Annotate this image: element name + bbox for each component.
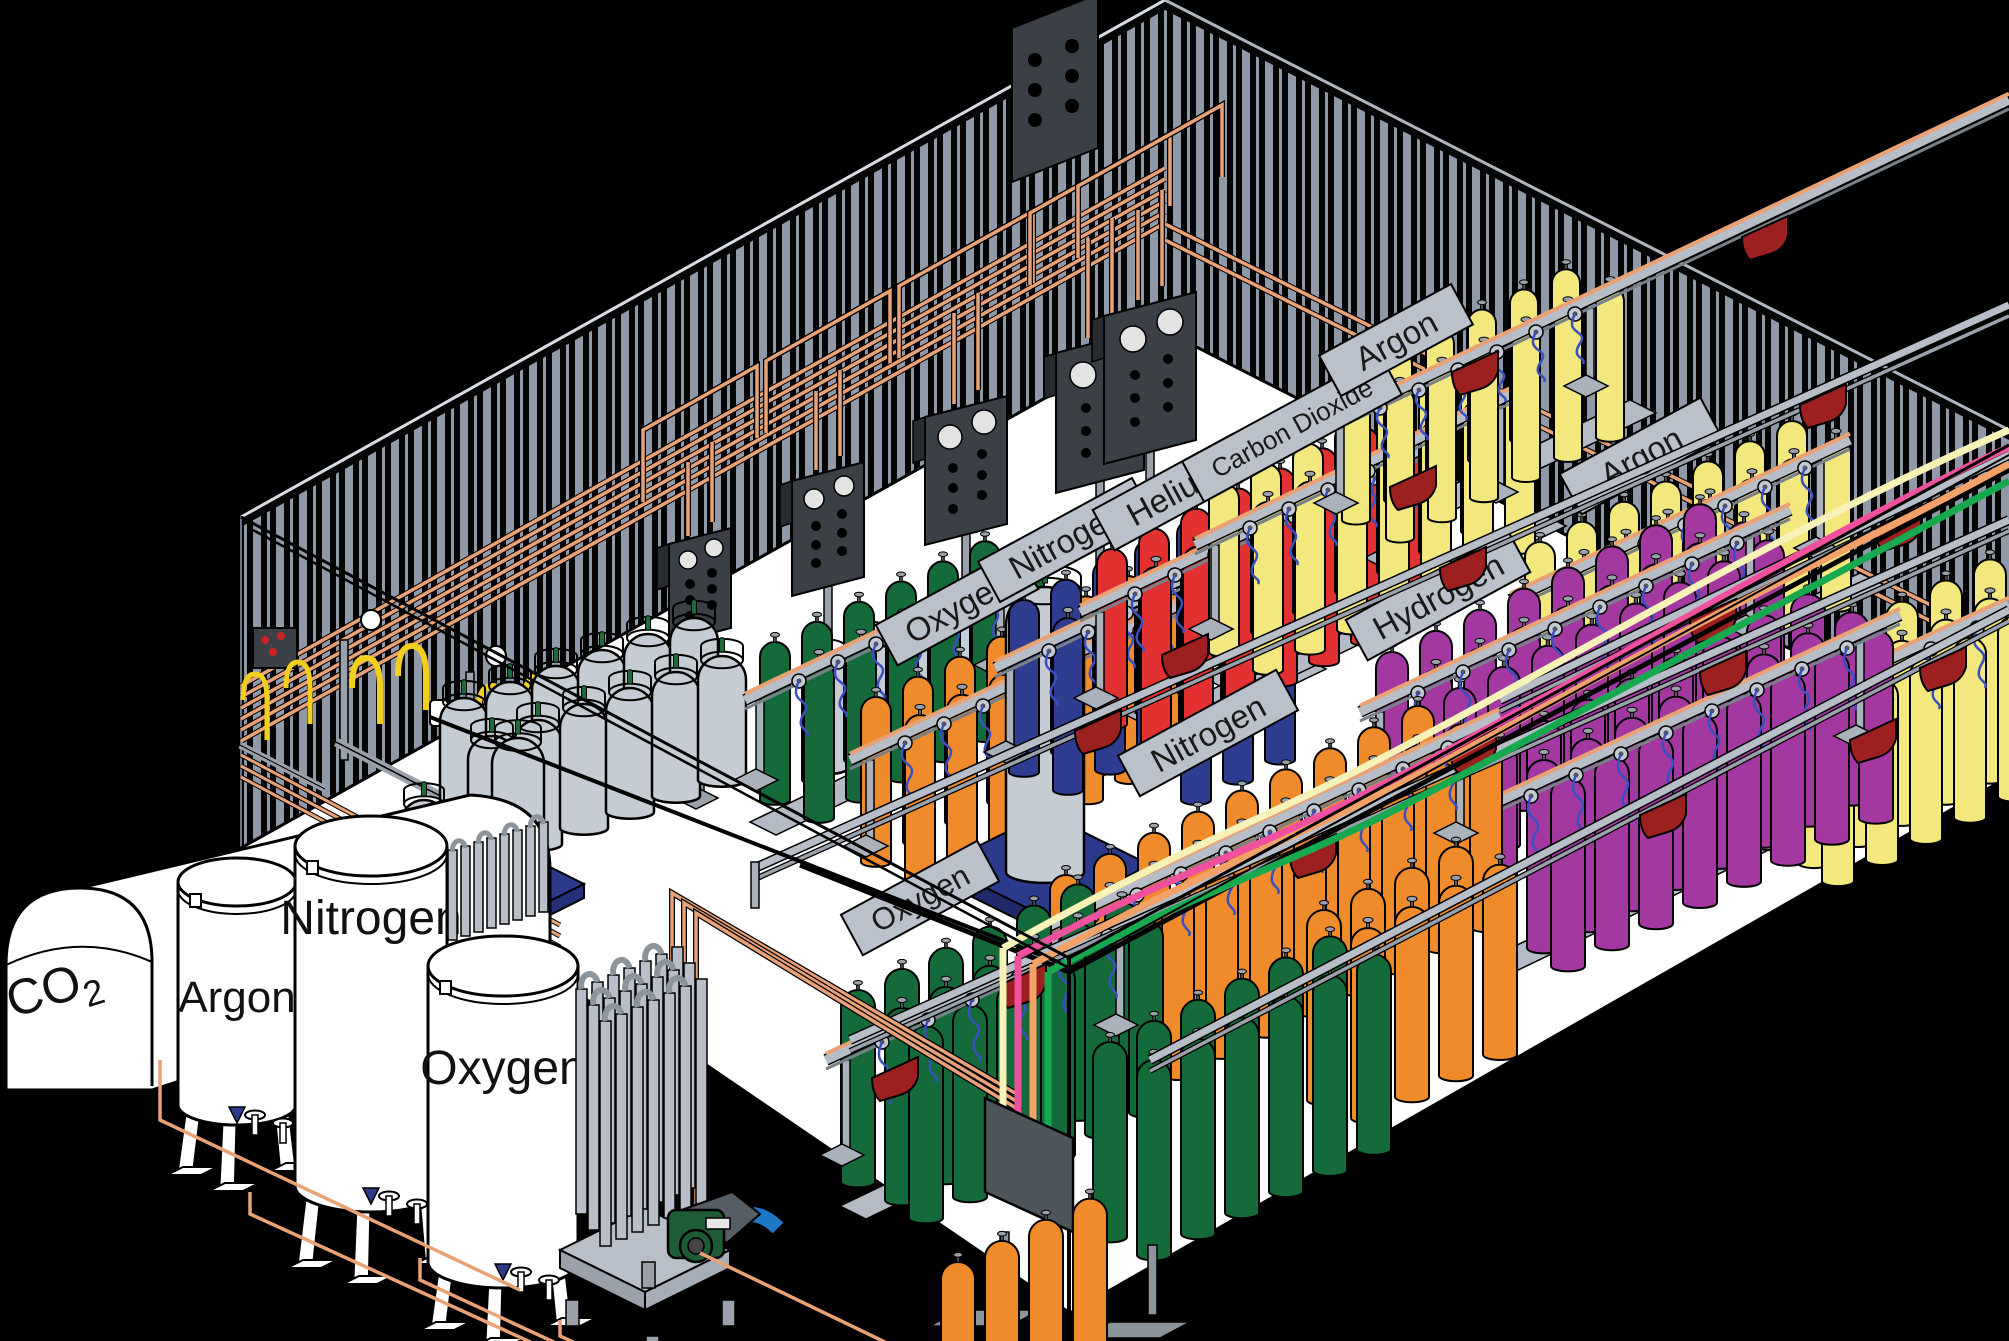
svg-text:Argon: Argon: [178, 973, 295, 1022]
svg-text:Nitrogen: Nitrogen: [280, 892, 461, 945]
svg-text:Oxygen: Oxygen: [420, 1042, 585, 1095]
